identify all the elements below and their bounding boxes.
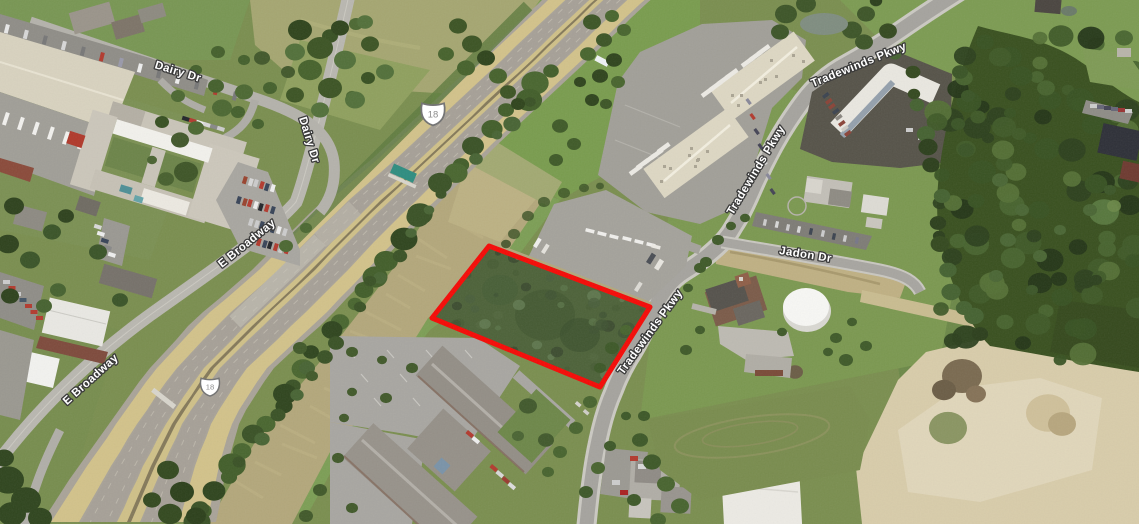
svg-text:18: 18	[206, 383, 215, 392]
svg-text:18: 18	[428, 109, 439, 120]
